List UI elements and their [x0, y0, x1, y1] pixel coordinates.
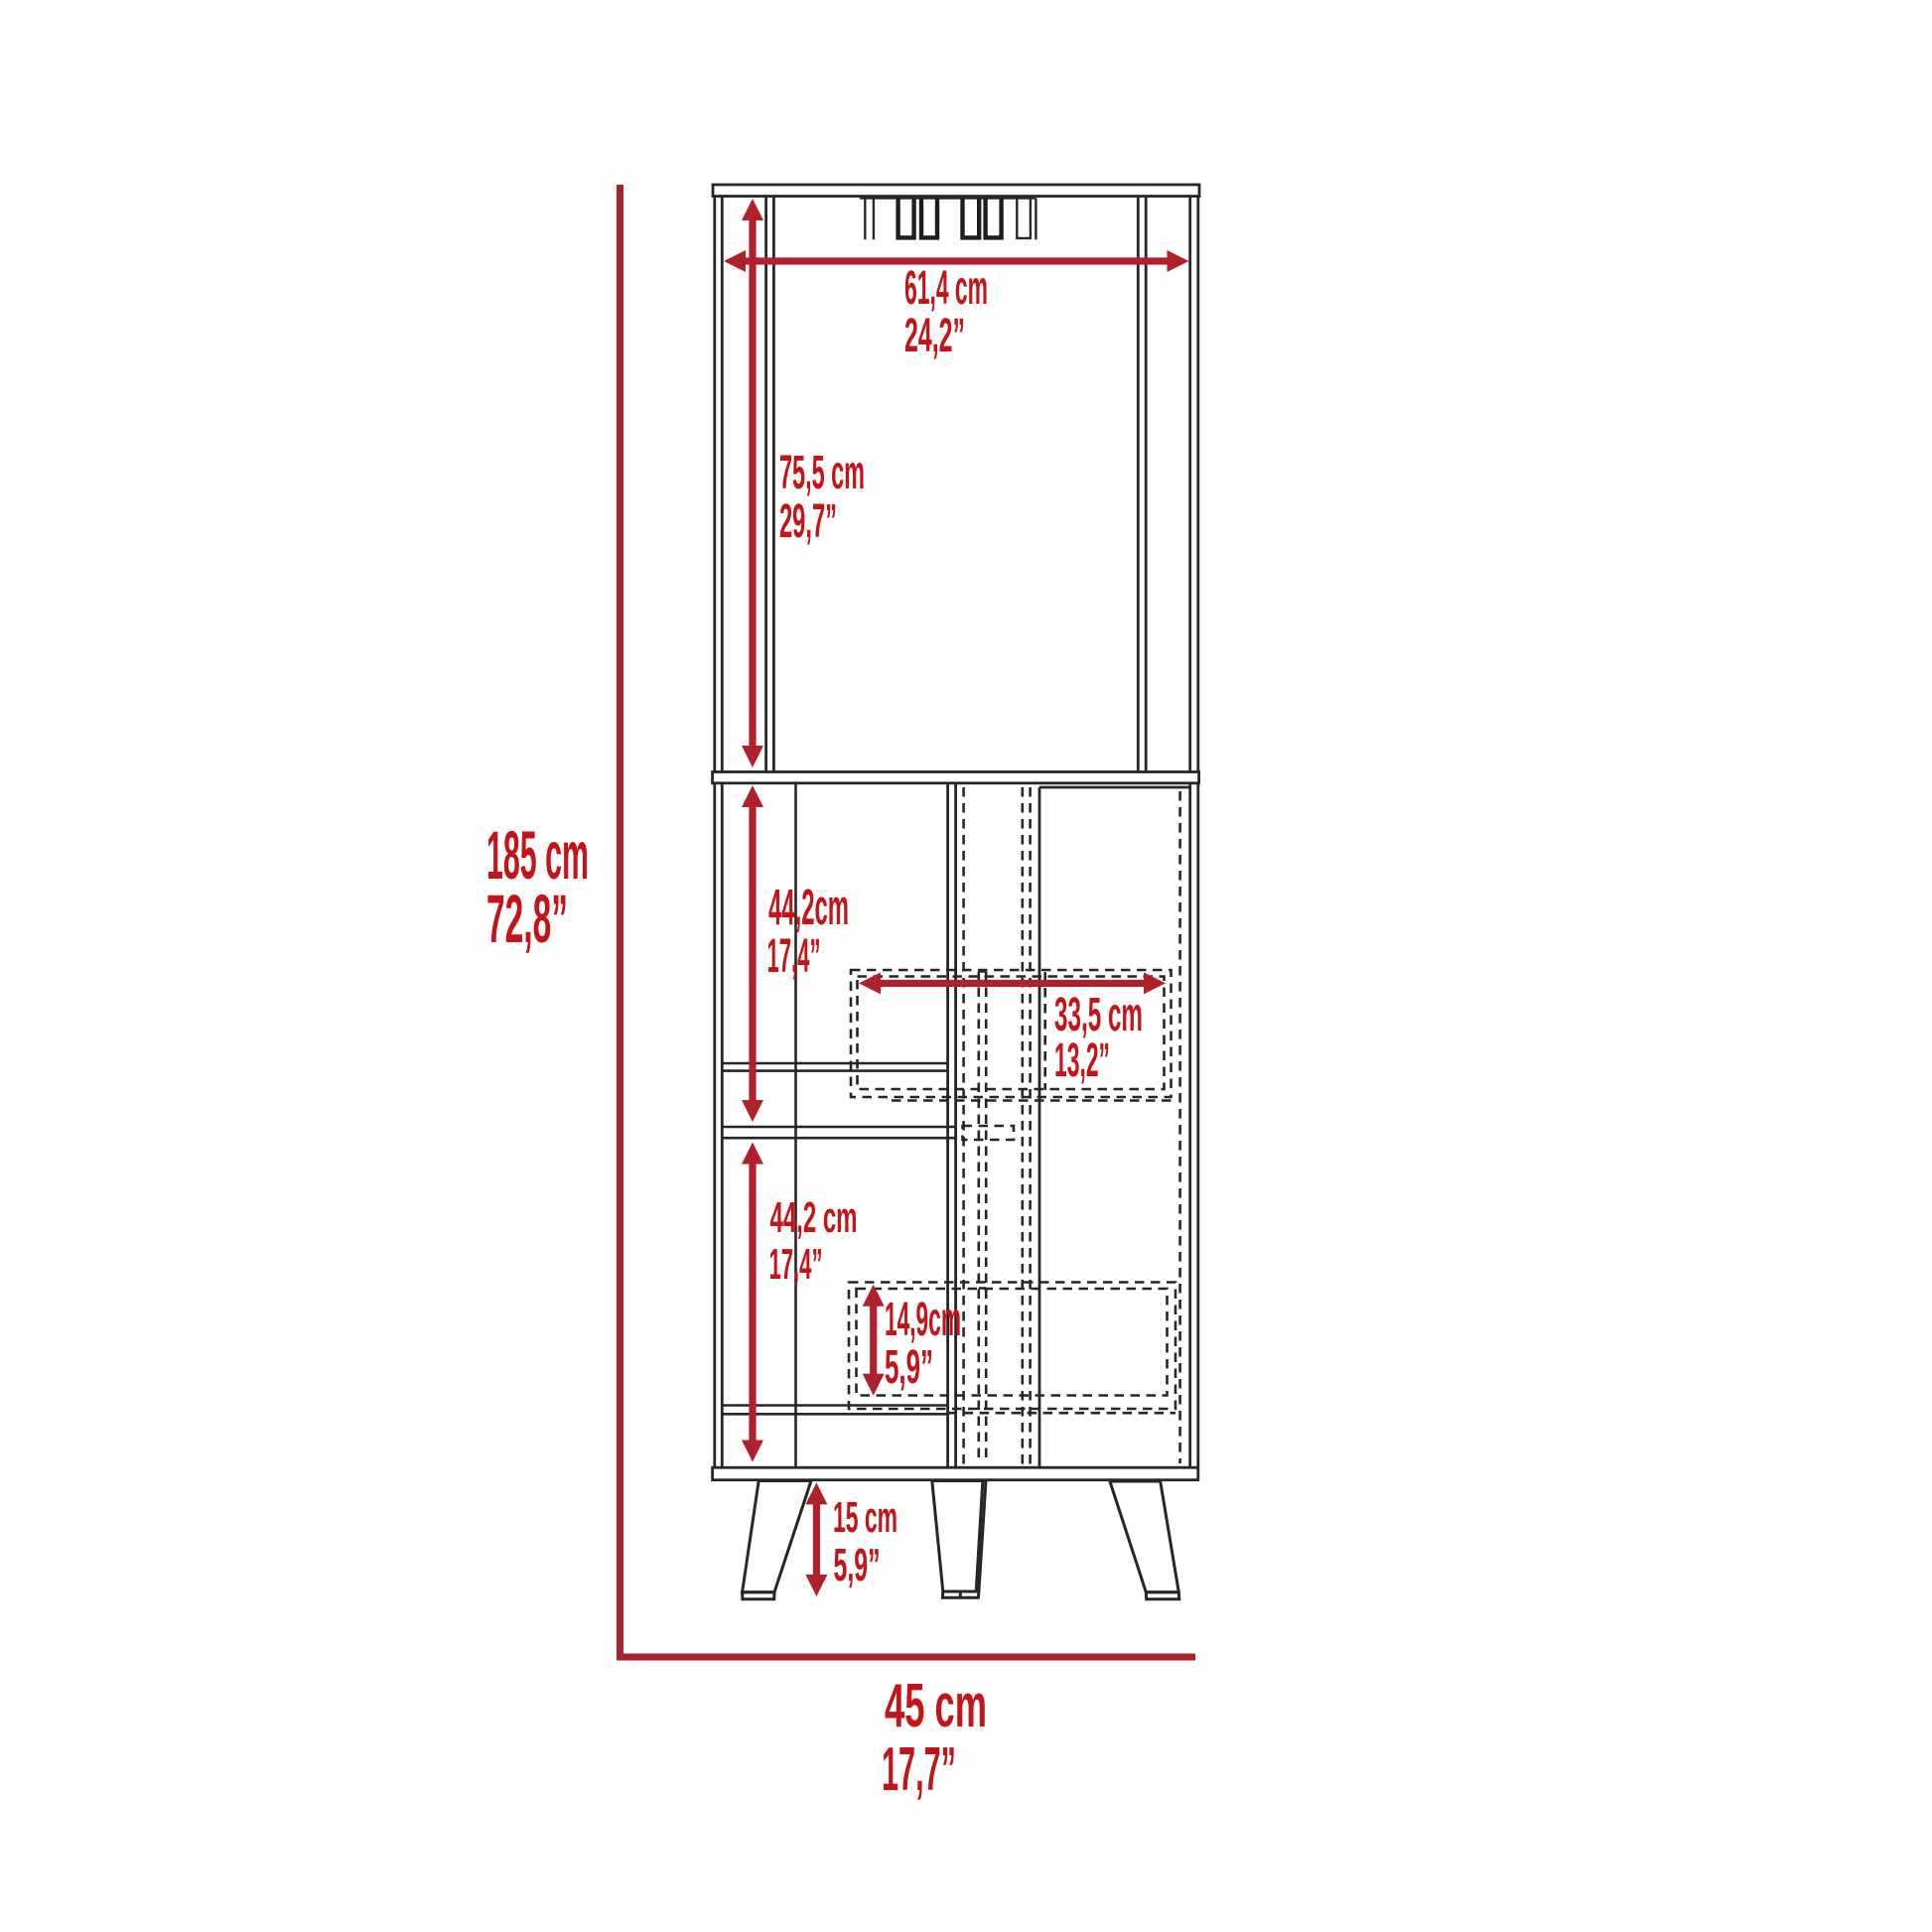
svg-text:72,8”: 72,8”: [486, 881, 568, 957]
svg-text:61,4 cm: 61,4 cm: [904, 262, 988, 315]
svg-text:44,2 cm: 44,2 cm: [770, 1193, 858, 1242]
svg-text:14,9cm: 14,9cm: [885, 1294, 961, 1346]
svg-text:17,7”: 17,7”: [882, 1735, 956, 1804]
svg-text:5,9”: 5,9”: [834, 1539, 881, 1590]
svg-text:24,2”: 24,2”: [904, 310, 965, 362]
svg-text:17,4”: 17,4”: [769, 1240, 823, 1289]
svg-text:15 cm: 15 cm: [833, 1493, 897, 1542]
svg-text:29,7”: 29,7”: [779, 495, 837, 548]
svg-text:13,2”: 13,2”: [1054, 1035, 1110, 1087]
svg-text:44,2cm: 44,2cm: [768, 879, 849, 935]
svg-text:5,9”: 5,9”: [885, 1341, 933, 1394]
svg-text:17,4”: 17,4”: [767, 930, 821, 983]
svg-text:75,5 cm: 75,5 cm: [779, 447, 865, 499]
svg-text:45 cm: 45 cm: [885, 1672, 987, 1740]
